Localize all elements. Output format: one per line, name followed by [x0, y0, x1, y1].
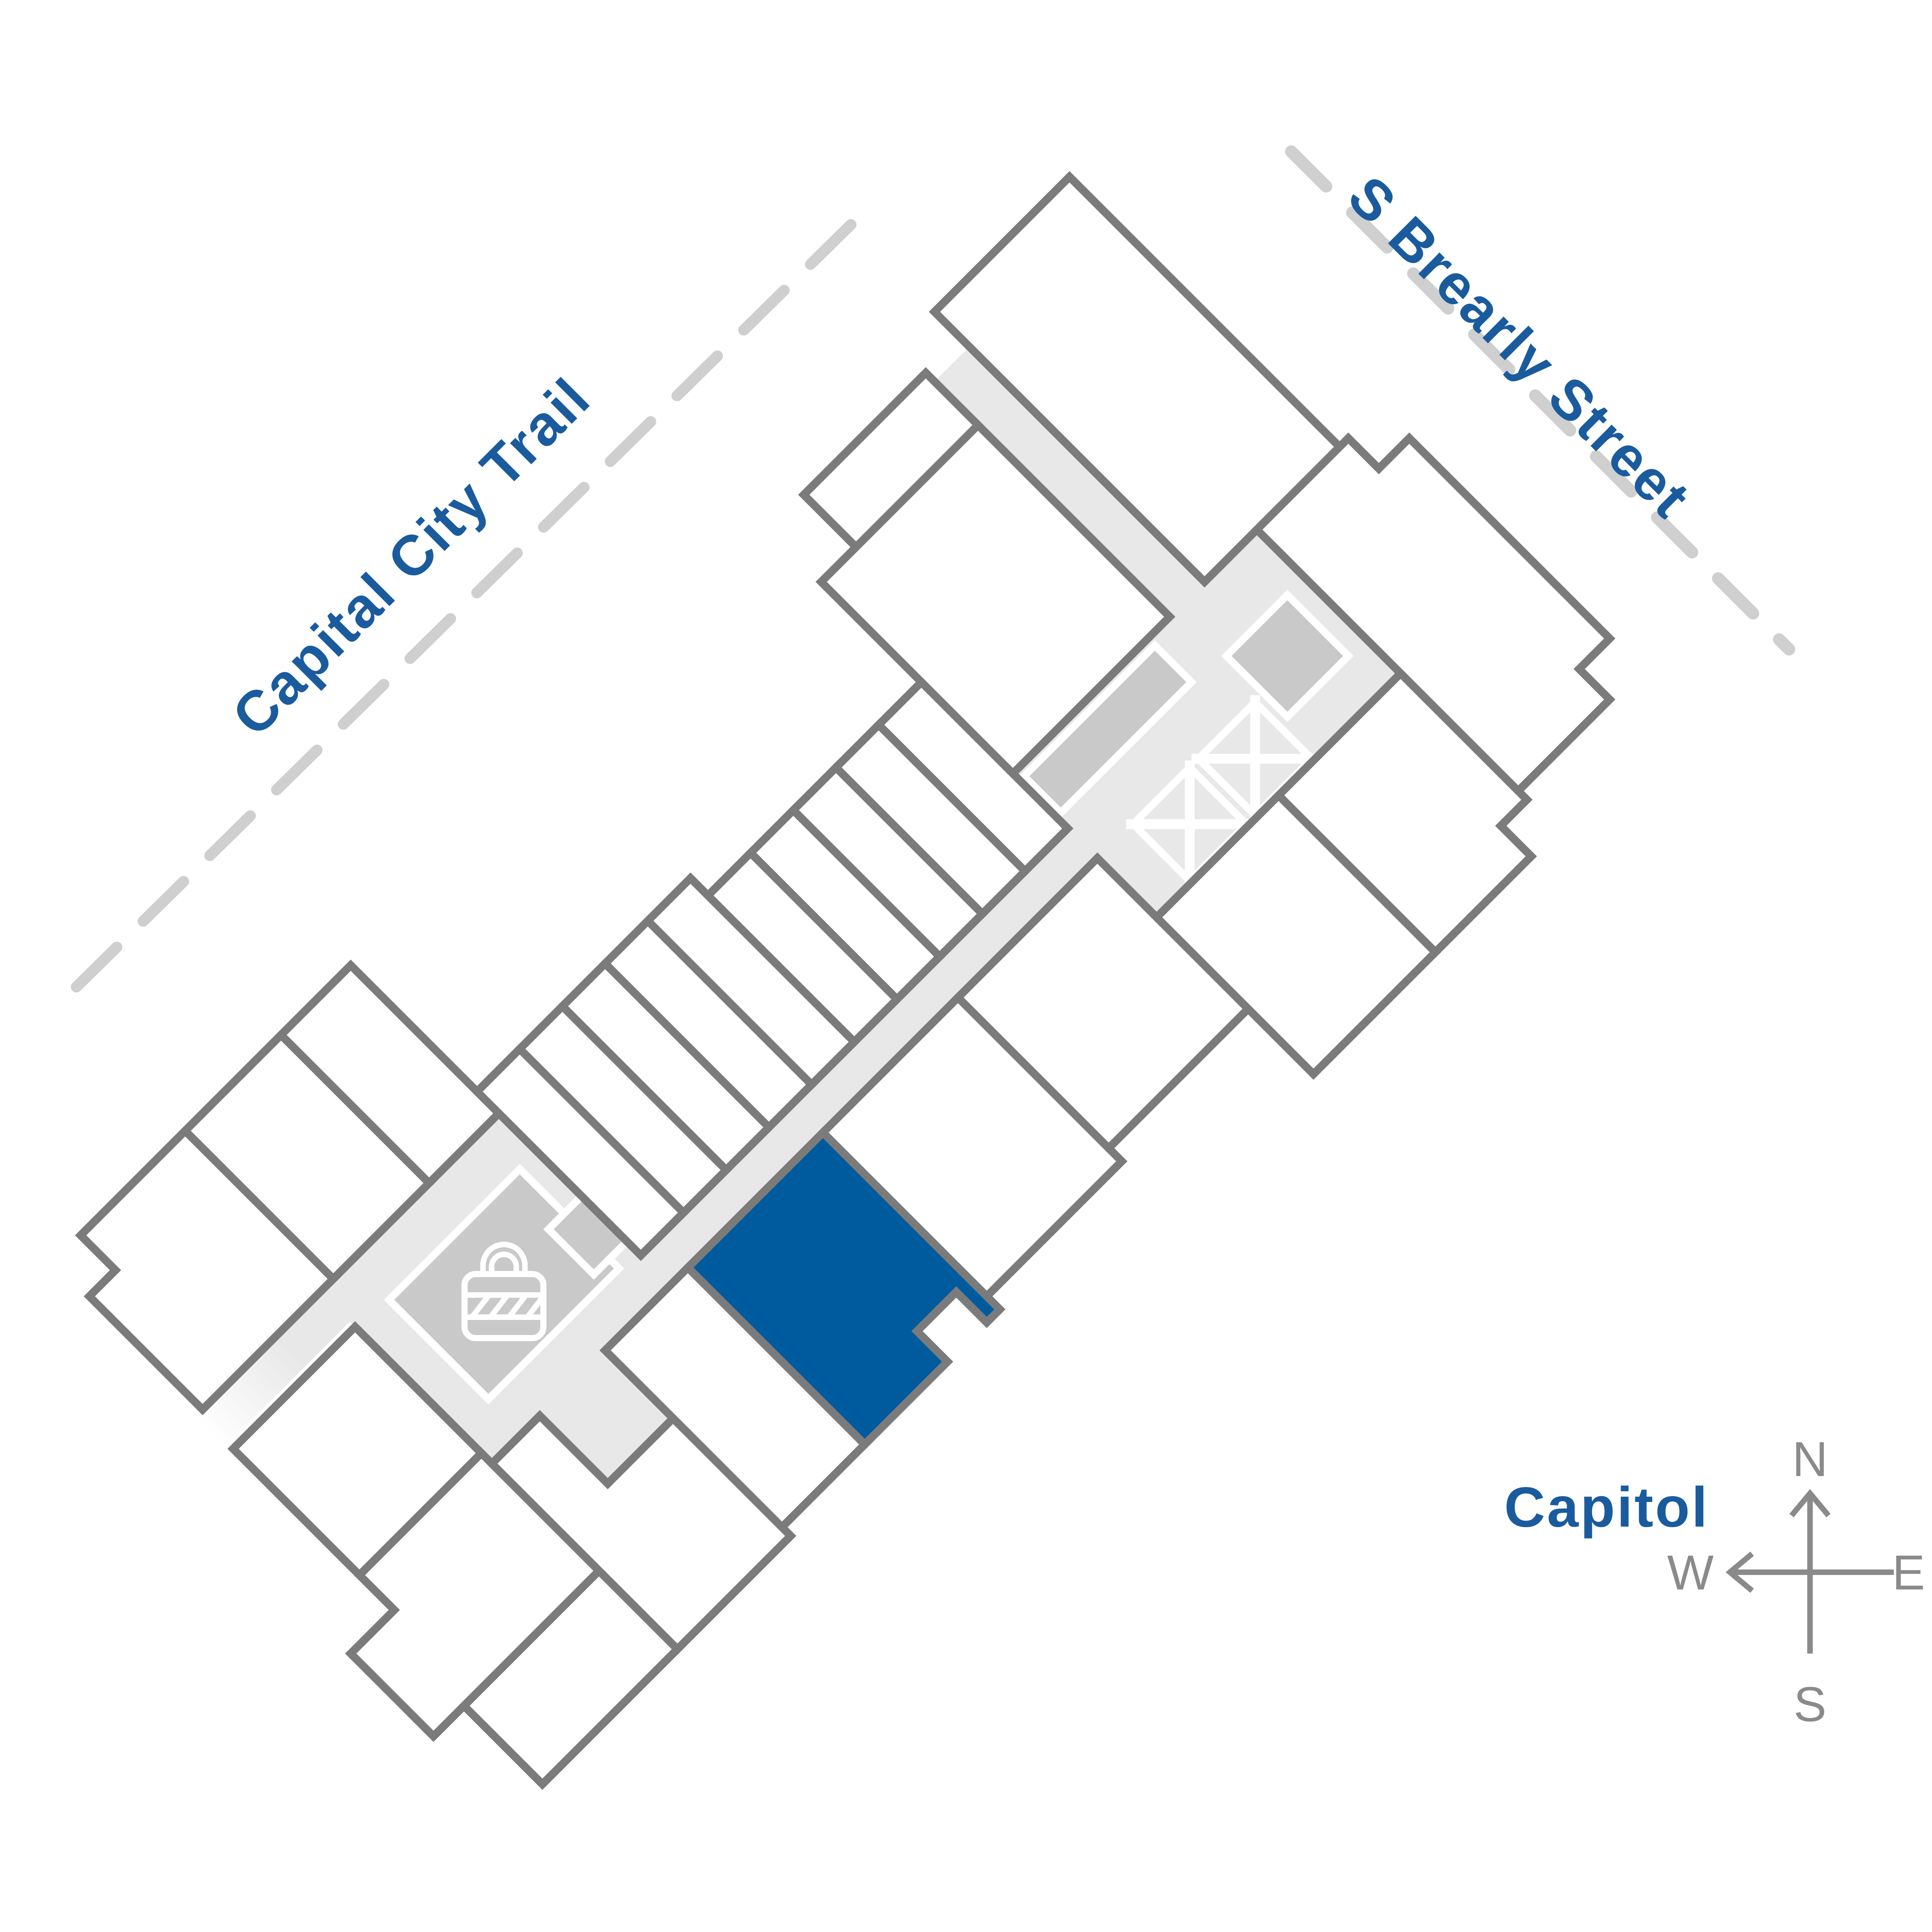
compass-letter-w: W: [1667, 1546, 1714, 1600]
compass-letter-s: S: [1794, 1677, 1827, 1732]
trail-label: Capital City Trail: [220, 366, 602, 748]
site-plan-map: Capital City Trail S Brearly Street Capi…: [0, 0, 1932, 1932]
capitol-label: Capitol: [1504, 1476, 1709, 1539]
compass-letter-e: E: [1892, 1546, 1925, 1600]
compass-letter-n: N: [1792, 1432, 1828, 1487]
building-plan: [0, 138, 1679, 1845]
